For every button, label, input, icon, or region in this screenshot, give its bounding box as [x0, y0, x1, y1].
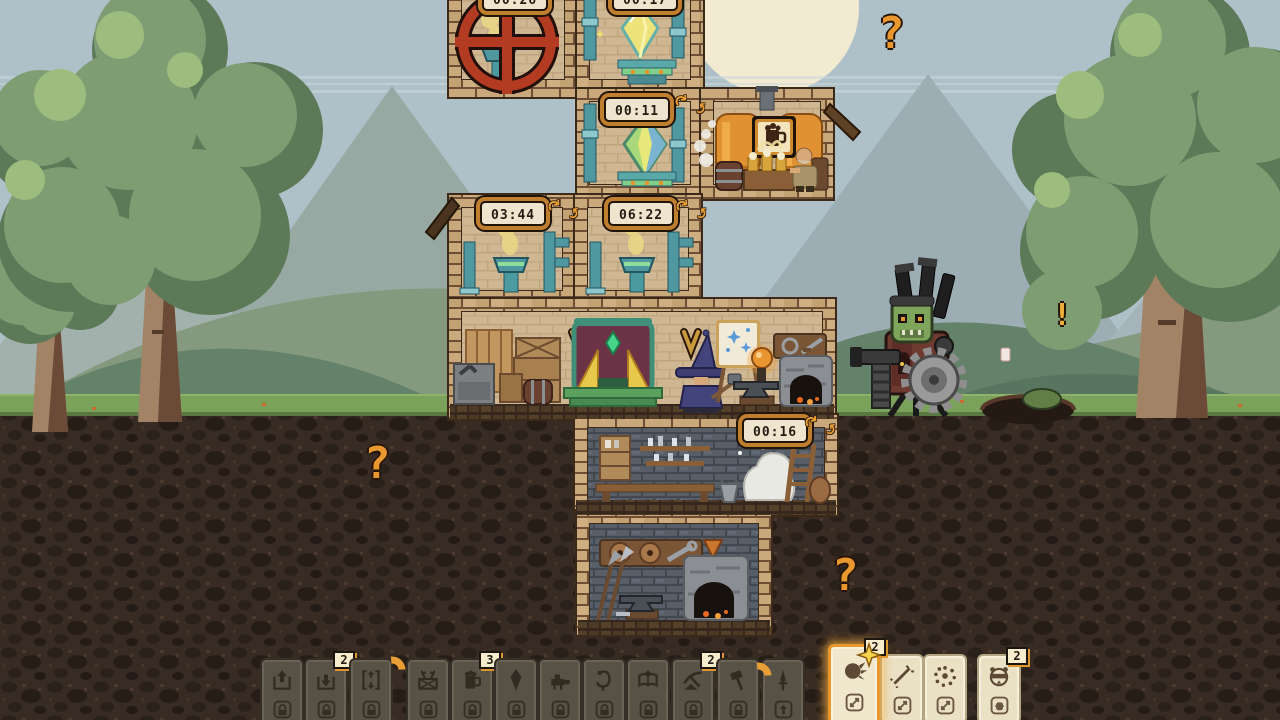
- forge-fireplace: [780, 356, 832, 406]
- room-reorder-arrows[interactable]: ↷↶: [549, 198, 576, 215]
- hotbar-card-war-machine[interactable]: [538, 658, 582, 720]
- hotbar-card-burst[interactable]: [923, 654, 967, 720]
- weapon-crate-icon: [415, 667, 441, 693]
- spellbook-icon: [635, 667, 661, 693]
- hotbar-card-room-send-up[interactable]: [260, 658, 304, 720]
- timer-value: 00:17: [623, 0, 667, 8]
- timer-value: 03:44: [491, 208, 535, 223]
- timer-cellar: 00:16: [742, 418, 808, 443]
- hammer-icon: [725, 667, 751, 693]
- clay-pot: [810, 477, 830, 503]
- forge-fireplace: [684, 556, 748, 620]
- new-card-crescent-icon: [750, 660, 776, 686]
- chimney: [760, 90, 774, 110]
- barrel-icon: [990, 696, 1009, 715]
- bar-counter: [744, 170, 794, 190]
- hotbar-card-mole-unit[interactable]: 2: [977, 654, 1021, 720]
- question-mark-underground-right: ?: [832, 550, 859, 601]
- lock-icon: [595, 700, 614, 719]
- room-send-up-icon: [269, 667, 295, 693]
- mole-unit-icon: [986, 663, 1012, 689]
- sparkle-icon: [856, 642, 882, 668]
- swap-icon: [845, 693, 864, 712]
- room-elevator-icon: [358, 667, 384, 693]
- turret-head: [890, 296, 934, 342]
- hotbar-card-mining-pick[interactable]: 2: [671, 658, 715, 720]
- lock-icon: [419, 700, 438, 719]
- lock-icon: [551, 700, 570, 719]
- swap-icon: [893, 696, 912, 715]
- crystal-pedestal: [618, 172, 676, 186]
- lock-icon: [463, 700, 482, 719]
- cabinet: [600, 436, 630, 480]
- question-mark-underground-left: ?: [364, 438, 391, 489]
- war-machine-icon: [547, 667, 573, 693]
- healer-staff-icon: [591, 667, 617, 693]
- tool-plaque: [774, 334, 826, 358]
- hotbar-card-tavern-beer[interactable]: 3: [450, 658, 494, 720]
- hotbar-card-weapon-crate[interactable]: [406, 658, 450, 720]
- timer-workshop-top-left: 00:26: [482, 0, 548, 11]
- toolbox: [454, 364, 494, 404]
- lock-icon: [317, 700, 336, 719]
- timer-furnace-left: 03:44: [480, 201, 546, 226]
- timer-furnace-right: 06:22: [608, 201, 674, 226]
- burst-icon: [932, 663, 958, 689]
- hotbar-card-room-receive-down[interactable]: 2: [304, 658, 348, 720]
- spark-slash-icon: [889, 663, 915, 689]
- hotbar-card-spellbook[interactable]: [626, 658, 670, 720]
- game-viewport: 00:26 00:17 00:11 ↷↶ 03:44 ↷↶ 06:22 ↷↶ 0…: [0, 0, 1280, 720]
- arrow-up-icon: [774, 700, 793, 719]
- hotbar-card-spark-slash[interactable]: [880, 654, 924, 720]
- swap-icon: [936, 696, 955, 715]
- room-receive-down-icon: [313, 667, 339, 693]
- beer-mug-icon: [459, 667, 485, 693]
- hotbar-card-healer-staff[interactable]: [582, 658, 626, 720]
- beer-recipe-card: [752, 116, 796, 158]
- lock-icon: [362, 700, 381, 719]
- throne: [564, 318, 662, 406]
- room-reorder-arrows[interactable]: ↷↶: [806, 414, 833, 431]
- timer-value: 00:26: [493, 0, 537, 8]
- new-card-crescent-icon: [384, 652, 410, 678]
- timer-crystal-room: 00:11: [604, 97, 670, 122]
- hotbar-card-mana-crystal[interactable]: [494, 658, 538, 720]
- lock-icon: [273, 700, 292, 719]
- question-mark-sky: ?: [878, 8, 905, 59]
- timer-value: 00:11: [615, 104, 659, 119]
- lock-icon: [684, 700, 703, 719]
- timer-workshop-top-right: 00:17: [612, 0, 678, 11]
- crystal-icon: [503, 667, 529, 693]
- barrel: [524, 380, 552, 404]
- count-badge: 2: [1006, 647, 1028, 665]
- timer-value: 06:22: [619, 208, 663, 223]
- lock-icon: [507, 700, 526, 719]
- room-reorder-arrows[interactable]: ↷↶: [677, 198, 704, 215]
- room-reorder-arrows[interactable]: ↷↶: [676, 93, 703, 110]
- enemy-alert-badge: !: [1053, 298, 1071, 333]
- mining-pick-icon: [680, 667, 706, 693]
- lock-icon: [639, 700, 658, 719]
- mole-rock: [1023, 389, 1061, 409]
- projectile: [1001, 348, 1010, 361]
- timer-value: 00:16: [753, 425, 797, 440]
- barrel: [716, 162, 742, 190]
- lock-icon: [729, 700, 748, 719]
